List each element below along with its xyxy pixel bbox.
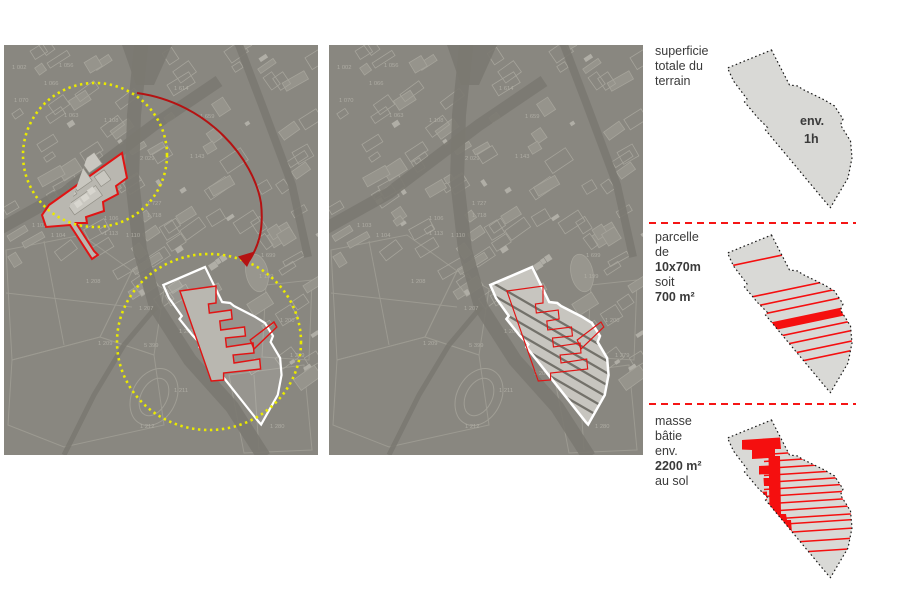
map-middle-panel: 1 0021 0561 0661 0701 0631 6141 6591 143…: [329, 45, 643, 455]
parcel-number-label: 1 002: [337, 65, 352, 71]
parcel-number-label: 1 063: [64, 113, 79, 119]
parcel-number-label: 1 056: [384, 63, 399, 69]
parcel-number-label: 1 108: [104, 118, 119, 124]
parcel-number-label: 1 199: [584, 274, 599, 280]
parcel-number-label: 5 399: [144, 343, 159, 349]
legend-line: 10x70m: [655, 260, 727, 275]
parcel-number-label: 1 280: [595, 424, 610, 430]
legend-line: superficie: [655, 44, 727, 59]
built-mass-block: [757, 492, 767, 501]
parcel-number-label: 5 399: [469, 343, 484, 349]
legend-label-superficie: superficie totale du terrain: [655, 44, 727, 89]
legend-line: bâtie: [655, 429, 727, 444]
parcel-number-label: 1 212: [140, 424, 155, 430]
parcel-number-label: 1 659: [525, 114, 540, 120]
parcel-number-label: 1 208: [86, 279, 101, 285]
diagram-terrain-total-area: env. 1h: [723, 46, 859, 218]
parcel-number-label: 1 104: [376, 233, 391, 239]
parcel-number-label: 1 208: [411, 279, 426, 285]
parcel-number-label: 1 209: [423, 341, 438, 347]
parcel-number-label: 1 104: [51, 233, 66, 239]
legend-line: soit: [655, 275, 727, 290]
parcel-number-label: 1 066: [44, 81, 59, 87]
diagram-parcel-strips: [723, 231, 859, 403]
red-dashed-separator-2: [649, 403, 856, 405]
parcel-number-label: 2 029: [465, 156, 480, 162]
parcel-number-label: 1 279: [615, 353, 630, 359]
parcel-number-label: 1 110: [451, 233, 465, 239]
parcel-number-label: 2 029: [140, 156, 155, 162]
parcel-number-label: 1 070: [339, 98, 354, 104]
legend-line: 700 m²: [655, 290, 727, 305]
legend-line: parcelle: [655, 230, 727, 245]
terrain-shape-layer: [723, 420, 859, 578]
parcel-number-label: 1 212: [465, 424, 480, 430]
parcel-number-label: 1 056: [59, 63, 74, 69]
parcel-number-label: 1 614: [499, 86, 514, 92]
parcel-number-label: 1 614: [174, 86, 189, 92]
legend-line: 2200 m²: [655, 459, 727, 474]
parcel-number-label: 1 727: [472, 201, 487, 207]
parcel-number-label: 1 002: [12, 65, 27, 71]
parcel-number-label: 1 143: [515, 154, 530, 160]
parcel-number-label: 1 106: [104, 216, 119, 222]
parcel-number-label: 1 143: [190, 154, 205, 160]
parcel-number-label: 1 063: [389, 113, 404, 119]
parcel-number-label: 1 200: [605, 318, 620, 324]
parcel-number-label: 1 699: [261, 253, 276, 259]
parcel-number-label: 1 279: [290, 353, 305, 359]
parcel-number-label: 1 113: [104, 231, 118, 237]
parcel-number-label: 1 070: [14, 98, 29, 104]
parcel-number-label: 1 200: [280, 318, 295, 324]
parcel-number-label: 1 106: [429, 216, 444, 222]
legend-line: totale du: [655, 59, 727, 74]
parcel-number-label: 1 280: [270, 424, 285, 430]
parcel-number-label: 1 113: [429, 231, 443, 237]
parcel-number-label: 1 199: [259, 274, 274, 280]
built-mass-block: [759, 466, 769, 475]
parcel-number-label: 1 211: [499, 388, 513, 394]
parcel-number-label: 1 103: [357, 223, 372, 229]
parcel-number-label: 1 207: [464, 306, 479, 312]
terrain-shape-layer: [728, 50, 853, 208]
parcel-number-label: 1 207: [139, 306, 154, 312]
parcel-number-label: 1 727: [147, 201, 162, 207]
parcel-number-label: 1 699: [586, 253, 601, 259]
diagram-built-mass: [723, 416, 859, 588]
legend-line: env.: [655, 444, 727, 459]
parcel-number-label: 1 066: [369, 81, 384, 87]
parcel-number-label: 1 110: [126, 233, 140, 239]
parcel-number-label: 1 718: [147, 213, 162, 219]
parcel-number-label: 1 718: [472, 213, 487, 219]
legend-line: masse: [655, 414, 727, 429]
map-left-panel: 1 0021 0561 0661 0701 0631 6141 6591 143…: [4, 45, 318, 455]
legend-line: de: [655, 245, 727, 260]
terrain-shape-layer: [723, 235, 859, 393]
parcel-number-label: 1 211: [174, 388, 188, 394]
legend-line: au sol: [655, 474, 727, 489]
red-dashed-separator-1: [649, 222, 856, 224]
page: 1 0021 0561 0661 0701 0631 6141 6591 143…: [0, 0, 900, 600]
area-note-1h: 1h: [804, 132, 819, 146]
parcel-number-label: 1 108: [429, 118, 444, 124]
area-note-env: env.: [800, 114, 824, 128]
parcel-number-label: 1 209: [98, 341, 113, 347]
legend-label-parcelle: parcelle de 10x70m soit 700 m²: [655, 230, 727, 305]
legend-label-masse: masse bâtie env. 2200 m² au sol: [655, 414, 727, 489]
legend-line: terrain: [655, 74, 727, 89]
